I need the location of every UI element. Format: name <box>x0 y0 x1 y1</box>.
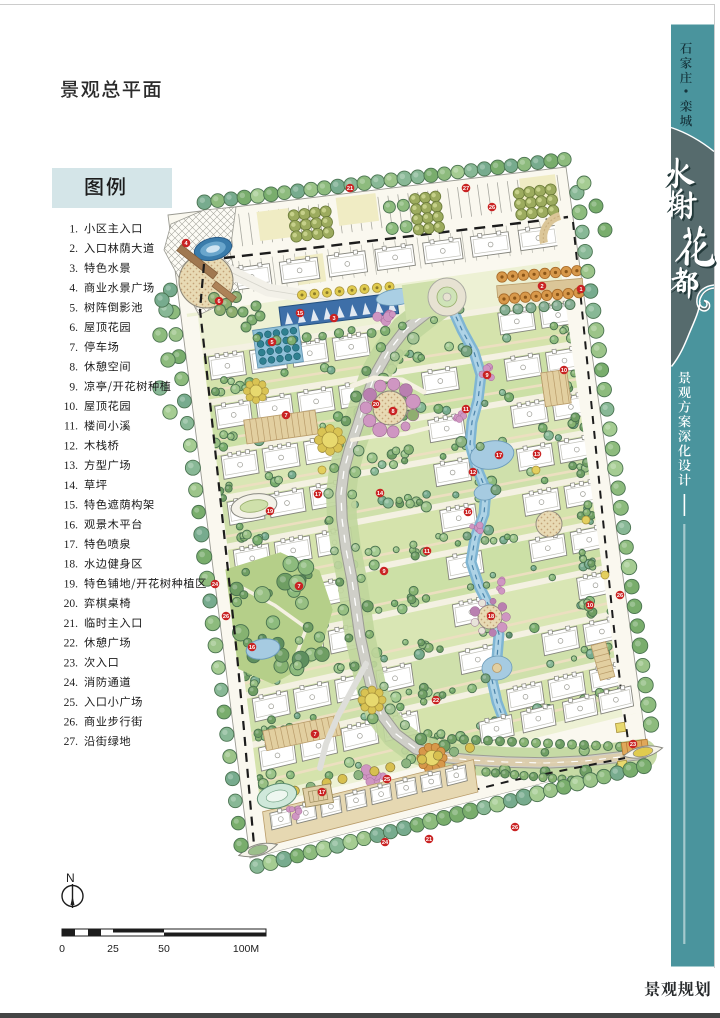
svg-text:17: 17 <box>319 790 325 796</box>
svg-text:26: 26 <box>617 593 623 599</box>
svg-text:18: 18 <box>488 614 494 620</box>
svg-text:25: 25 <box>107 943 119 955</box>
svg-text:14.: 14. <box>64 480 79 492</box>
svg-text:1: 1 <box>579 287 582 293</box>
svg-text:2.: 2. <box>69 243 78 255</box>
svg-text:23: 23 <box>630 742 636 748</box>
svg-text:21.: 21. <box>64 618 79 630</box>
svg-text:12: 12 <box>470 470 476 476</box>
svg-text:24.: 24. <box>64 677 79 689</box>
svg-text:26: 26 <box>223 614 229 620</box>
svg-text:100M: 100M <box>233 943 259 955</box>
svg-text:7: 7 <box>284 413 287 419</box>
svg-text:22.: 22. <box>64 638 79 650</box>
svg-text:26.: 26. <box>64 717 79 729</box>
svg-text:0: 0 <box>59 943 65 955</box>
svg-text:16: 16 <box>465 510 471 516</box>
svg-text:3: 3 <box>332 316 335 322</box>
svg-text:19.: 19. <box>64 578 79 590</box>
svg-text:24: 24 <box>212 582 219 588</box>
svg-text:6: 6 <box>217 299 220 305</box>
svg-text:25.: 25. <box>64 697 79 709</box>
svg-text:8: 8 <box>391 409 394 415</box>
svg-text:21: 21 <box>426 837 432 843</box>
svg-text:21: 21 <box>347 186 353 192</box>
svg-text:5.: 5. <box>69 302 78 314</box>
svg-text:10.: 10. <box>64 401 79 413</box>
svg-text:8.: 8. <box>69 362 78 374</box>
svg-text:N: N <box>66 871 75 885</box>
svg-text:10: 10 <box>587 603 593 609</box>
svg-text:26: 26 <box>512 825 518 831</box>
svg-text:11: 11 <box>463 407 469 413</box>
svg-text:5: 5 <box>270 340 273 346</box>
svg-text:1.: 1. <box>69 224 78 236</box>
svg-text:26: 26 <box>489 205 495 211</box>
svg-text:27.: 27. <box>64 736 79 748</box>
svg-text:23.: 23. <box>64 657 79 669</box>
svg-text:4.: 4. <box>69 283 78 295</box>
svg-text:20.: 20. <box>64 598 79 610</box>
svg-text:16.: 16. <box>64 519 79 531</box>
svg-text:2: 2 <box>540 284 543 290</box>
svg-text:13: 13 <box>534 452 540 458</box>
svg-text:10: 10 <box>561 368 567 374</box>
svg-text:6.: 6. <box>69 322 78 334</box>
svg-text:24: 24 <box>382 840 389 846</box>
svg-text:13.: 13. <box>64 460 79 472</box>
svg-text:22: 22 <box>433 698 439 704</box>
svg-text:14: 14 <box>377 491 384 497</box>
svg-text:25: 25 <box>384 777 390 783</box>
svg-text:17.: 17. <box>64 539 79 551</box>
svg-text:7: 7 <box>297 584 300 590</box>
svg-text:7: 7 <box>313 732 316 738</box>
svg-text:9: 9 <box>382 569 385 575</box>
svg-text:9: 9 <box>485 373 488 379</box>
svg-text:7.: 7. <box>69 342 78 354</box>
svg-text:50: 50 <box>158 943 170 955</box>
svg-text:9.: 9. <box>69 381 78 393</box>
svg-text:17: 17 <box>315 492 321 498</box>
svg-text:11: 11 <box>424 549 430 555</box>
svg-text:12.: 12. <box>64 440 79 452</box>
svg-text:20: 20 <box>373 402 379 408</box>
svg-text:17: 17 <box>496 453 502 459</box>
svg-text:11.: 11. <box>64 421 78 433</box>
svg-text:16: 16 <box>249 645 255 651</box>
svg-text:18.: 18. <box>64 559 79 571</box>
svg-text:15.: 15. <box>64 500 79 512</box>
svg-text:27: 27 <box>463 186 469 192</box>
svg-text:15: 15 <box>297 311 303 317</box>
svg-text:3.: 3. <box>69 263 78 275</box>
svg-text:19: 19 <box>267 509 273 515</box>
